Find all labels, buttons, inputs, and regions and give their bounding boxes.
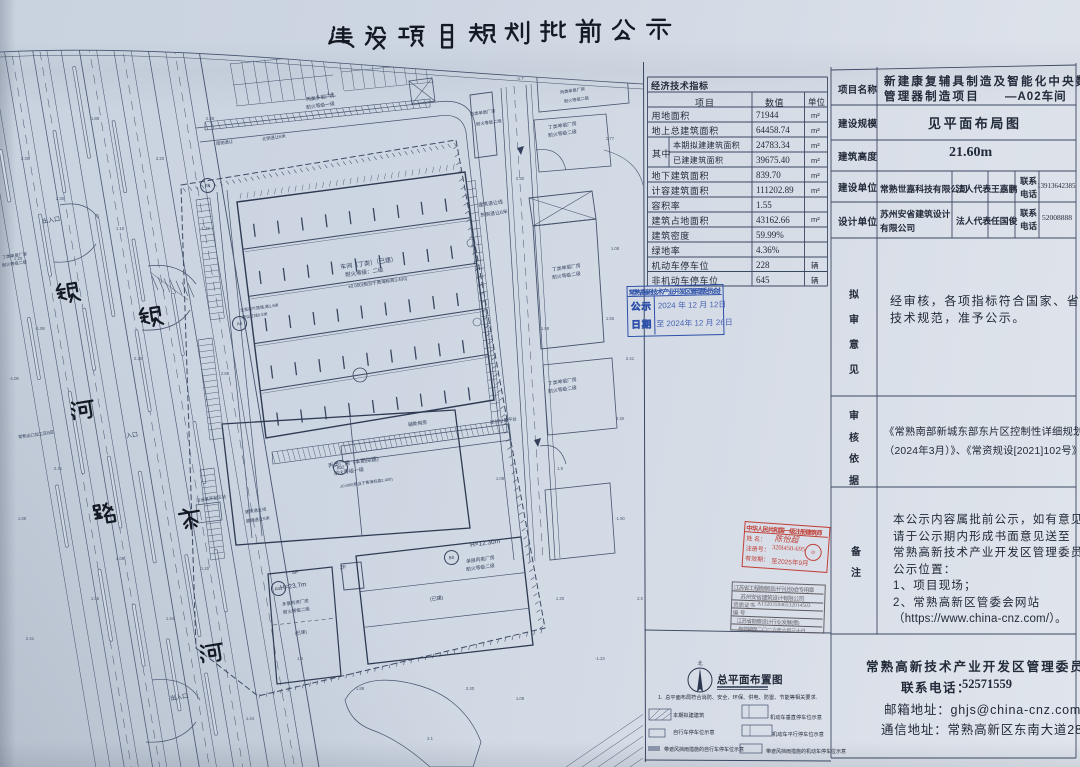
svg-text:1.55: 1.55: [606, 316, 615, 321]
svg-text:-1.23: -1.23: [595, 656, 605, 661]
svg-text:1.88: 1.88: [356, 686, 365, 691]
svg-text:2.1: 2.1: [427, 736, 433, 741]
svg-text:1.55: 1.55: [91, 596, 100, 601]
svg-text:2.30: 2.30: [56, 196, 65, 201]
svg-text:2.77: 2.77: [606, 136, 615, 141]
svg-text:2.0: 2.0: [637, 596, 643, 601]
svg-text:1.44: 1.44: [166, 616, 175, 621]
svg-text:-1.23: -1.23: [200, 226, 210, 231]
svg-text:1.88: 1.88: [541, 326, 550, 331]
svg-text:1.88: 1.88: [91, 116, 100, 121]
svg-text:-1.7: -1.7: [516, 76, 524, 81]
svg-text:2.88: 2.88: [221, 371, 230, 376]
svg-text:1.10: 1.10: [116, 226, 125, 231]
svg-text:1.08: 1.08: [496, 476, 505, 481]
svg-text:-1.00: -1.00: [615, 516, 625, 521]
svg-text:1.88: 1.88: [18, 516, 27, 521]
svg-text:2.30: 2.30: [134, 356, 143, 361]
svg-text:2.41: 2.41: [26, 636, 35, 641]
svg-text:1.6: 1.6: [297, 656, 303, 661]
svg-text:-1.08: -1.08: [35, 326, 45, 331]
svg-text:1.20: 1.20: [556, 596, 565, 601]
svg-text:2.30: 2.30: [466, 686, 475, 691]
svg-text:2.30: 2.30: [516, 176, 525, 181]
svg-text:1.08: 1.08: [116, 556, 125, 561]
svg-text:1.08: 1.08: [611, 246, 620, 251]
svg-text:3.20: 3.20: [156, 156, 165, 161]
svg-text:2.30: 2.30: [21, 156, 30, 161]
svg-text:-1.08: -1.08: [9, 376, 19, 381]
svg-text:2.41: 2.41: [626, 356, 635, 361]
svg-text:2.88: 2.88: [206, 116, 215, 121]
svg-text:1.20: 1.20: [201, 566, 210, 571]
svg-text:2.30: 2.30: [616, 416, 625, 421]
svg-text:北: 北: [697, 660, 702, 667]
svg-text:1.44: 1.44: [246, 716, 255, 721]
svg-text:1.08: 1.08: [516, 696, 525, 701]
svg-text:2.41: 2.41: [54, 466, 63, 471]
svg-text:1.9: 1.9: [557, 466, 563, 471]
